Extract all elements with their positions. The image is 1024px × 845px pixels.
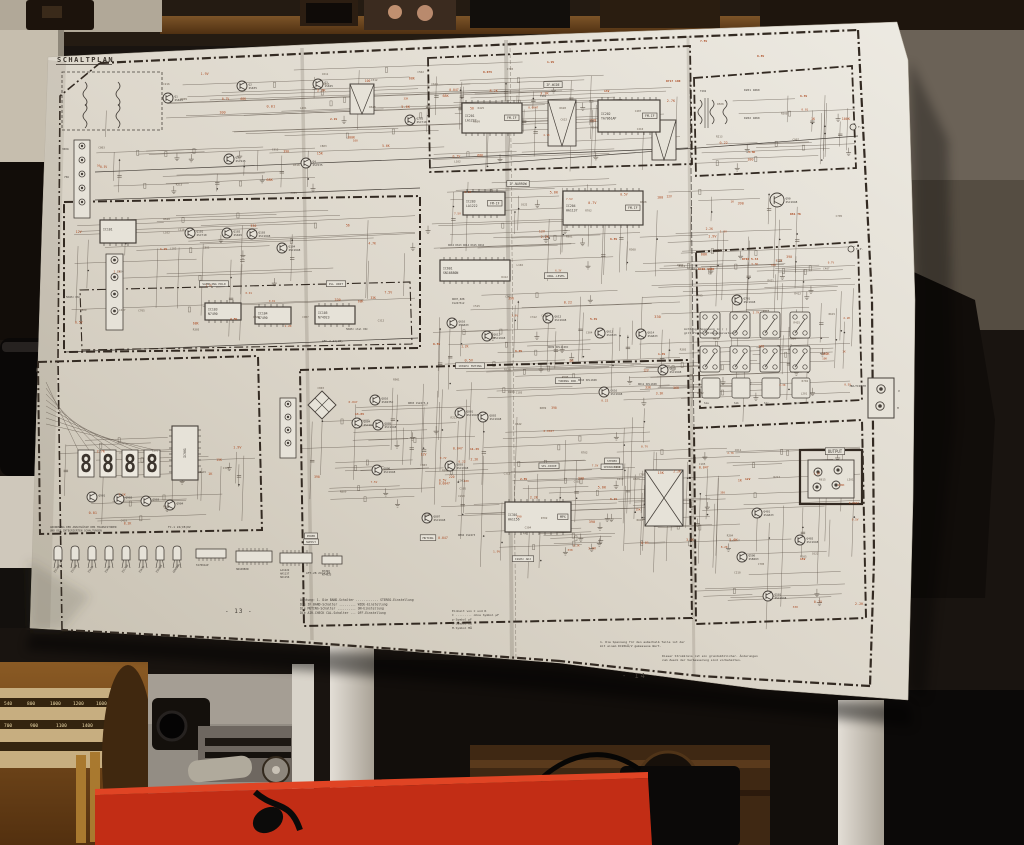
ref-annotation: R615 — [829, 312, 836, 316]
switch-label: S1b — [734, 401, 739, 405]
legend-transistor-outline — [54, 546, 62, 560]
dial-number: 1400 — [82, 723, 93, 729]
jack-strip — [74, 140, 90, 218]
value-annotation: 0.01 — [269, 299, 276, 303]
ref-annotation: R204 — [508, 390, 515, 394]
junction-dot — [768, 194, 770, 196]
schematic-label: 75Ω — [64, 175, 69, 179]
ref-annotation: C803 — [320, 144, 327, 148]
ref-annotation: R809 — [80, 308, 87, 312]
ref-annotation: C502 — [574, 479, 581, 483]
output-jack-pin — [815, 485, 818, 488]
schematic-label: D201 1N60 — [744, 88, 760, 92]
value-annotation: 0.0047 — [528, 105, 538, 109]
voltage-annotation: 12V — [745, 477, 751, 481]
ic-ref: IC103 — [208, 308, 218, 312]
legend-caption: UND DER INTEGRIERTEN SCHALTUNGEN — [50, 529, 102, 533]
voltage-annotation: 13.8V — [355, 412, 364, 416]
ref-annotation: R901 — [566, 235, 573, 239]
transistor-part: 2SC1648 — [289, 248, 301, 252]
ref-annotation: R213 — [763, 309, 770, 313]
legend-ic-label: HA1137 — [280, 571, 290, 575]
transistor-part: 2SC945 — [236, 159, 246, 163]
ic-ref: IC204 — [566, 204, 576, 208]
camera-lens — [158, 712, 186, 740]
chrome-knob-center — [272, 766, 280, 774]
ref-annotation: C705 — [758, 562, 765, 566]
value-annotation: 390 — [516, 515, 522, 519]
ref-annotation: C304 — [714, 248, 721, 252]
ref-annotation: R318 — [293, 163, 300, 167]
legend-transistor-outline — [105, 546, 113, 560]
dial-number: 540 — [4, 701, 12, 707]
value-annotation: 390 — [786, 255, 792, 259]
transistor-part: 2SC1648 — [259, 234, 271, 238]
schematic-label: D610 SEL1048 — [578, 378, 597, 382]
junction-dot — [769, 537, 771, 539]
value-annotation: 2.2K — [471, 458, 479, 462]
switch-label: S1d — [794, 401, 799, 405]
if-can — [350, 84, 374, 114]
ref-annotation: C803 — [290, 191, 297, 195]
ic-ref: IC101 — [103, 228, 113, 232]
junction-dot — [230, 277, 232, 279]
value-annotation: 100 — [747, 157, 753, 161]
value-annotation: 56 — [569, 359, 573, 363]
value-annotation: 0.047 — [438, 536, 448, 540]
ic-tag: FM-IF — [507, 116, 517, 120]
legend-transistor-outline — [139, 546, 147, 560]
ref-annotation: R305 — [680, 347, 687, 351]
value-annotation: 0.22 — [458, 459, 465, 463]
ref-annotation: R204 — [727, 534, 734, 538]
value-annotation: 7.5V — [371, 480, 378, 484]
value-annotation: 2.2K — [118, 492, 125, 496]
ref-annotation: C105 — [460, 487, 467, 491]
ref-annotation: C210 — [458, 494, 465, 498]
transistor-part: 2SC535 — [313, 163, 323, 167]
junction-dot — [88, 270, 90, 272]
ref-annotation: C304 — [525, 525, 532, 529]
ref-annotation: C611 — [322, 72, 329, 76]
switch-label: S1c — [764, 401, 769, 405]
note-line: Die AIR-CHECK CAL-Schalter ... OFF-Einst… — [300, 611, 386, 615]
value-annotation: 3.3K — [540, 91, 549, 95]
dial-number: 1600 — [96, 701, 107, 707]
ref-annotation: C312 — [504, 472, 511, 476]
junction-dot — [322, 420, 324, 422]
schematic-label: T.P. — [858, 125, 865, 129]
value-annotation: 7.5V — [454, 212, 461, 216]
transistor-part: 2SC710 — [197, 233, 207, 237]
ref-annotation: C907 — [302, 315, 309, 319]
value-annotation: 3.3K — [656, 391, 664, 395]
multipath-plate — [868, 378, 894, 418]
ic-tag: FM-IF — [645, 114, 655, 118]
ic-tag: FM-IF — [628, 206, 638, 210]
junction-dot — [619, 335, 621, 337]
voltage-annotation: 1.2V — [160, 247, 167, 251]
legend-ic-label: HA1156 — [280, 575, 290, 579]
switch — [762, 378, 780, 398]
legend-transistor-outline — [156, 546, 164, 560]
junction-dot — [711, 211, 713, 213]
dial-number: 900 — [30, 723, 38, 729]
schematic-label: 50kHz xtal OSC — [346, 327, 368, 331]
junction-dot — [707, 514, 709, 516]
value-annotation: 1K — [842, 350, 846, 354]
family-photo-frame — [364, 0, 456, 30]
jack-pin — [81, 159, 83, 161]
voltage-annotation: 0.8V — [757, 54, 764, 58]
ref-annotation: C705 — [836, 214, 843, 218]
switch — [702, 378, 720, 398]
ref-annotation: R412 — [614, 465, 621, 469]
ref-annotation: C312 — [530, 315, 537, 319]
junction-dot — [788, 389, 790, 391]
voltage-annotation: 2.8V — [520, 477, 527, 481]
note-line: gilt für Verstimmungszustand — [684, 331, 735, 335]
junction-dot — [514, 320, 516, 322]
schematic-label: V — [898, 389, 900, 393]
value-annotation: 33K — [370, 296, 376, 300]
ic-chip — [100, 220, 136, 243]
ref-annotation: R508 — [163, 505, 170, 509]
value-annotation: 7.5V — [592, 463, 599, 467]
value-annotation: 4.7K — [368, 242, 376, 246]
value-annotation: 0.01 — [801, 107, 808, 111]
photo-face — [417, 5, 433, 21]
ref-annotation: R702 — [585, 209, 592, 213]
jack-pin — [287, 429, 289, 431]
value-annotation: 1.9V — [201, 72, 209, 76]
ref-annotation: R213 — [424, 513, 431, 517]
value-annotation: 3.3K — [751, 262, 758, 266]
value-annotation: 330 — [334, 298, 340, 302]
value-annotation: 4.7K — [543, 133, 550, 137]
boxed-label: SUPPLY — [306, 540, 316, 544]
ref-annotation: C705 — [507, 67, 514, 71]
ref-annotation: L201 — [300, 106, 307, 110]
transistor-part: 2SC823 — [607, 333, 617, 337]
value-annotation: 12V — [666, 194, 672, 198]
transistor-part: 2SC1648 — [434, 518, 446, 522]
junction-dot — [291, 239, 293, 241]
boxed-label: TUNING IND. — [558, 379, 578, 383]
value-annotation: 15K — [216, 458, 222, 462]
schematic-label: 50kHz OSC — [66, 295, 80, 299]
ref-annotation: R508 — [442, 469, 449, 473]
ref-annotation: R412 — [501, 275, 508, 279]
boxed-label: SEL.DIODE — [541, 464, 556, 468]
transistor-part: 2SC1648 — [744, 300, 756, 304]
transistor-ref: Q903 — [153, 498, 160, 502]
transistor-part: 2SA823 — [764, 513, 774, 517]
value-annotation: 390 — [589, 520, 595, 524]
boxed-label: PLL UNIT — [329, 282, 344, 286]
value-annotation: 390 — [738, 201, 744, 205]
value-annotation: 0.0047 — [849, 501, 860, 505]
ref-annotation: L201 — [847, 477, 854, 481]
value-annotation: 33K — [645, 386, 651, 390]
ref-annotation: R520 — [504, 367, 511, 371]
voltage-annotation: 13V — [604, 89, 610, 93]
ic-part: TA7061AP — [601, 117, 616, 121]
ref-annotation: R628 — [689, 538, 696, 542]
ref-annotation: C105 — [699, 462, 706, 466]
junction-dot — [501, 542, 503, 544]
transistor-part: 2SC1648 — [786, 200, 798, 204]
jack-pin — [113, 293, 116, 296]
value-annotation: 5.6K — [382, 144, 390, 148]
value-annotation: 390 — [283, 150, 289, 154]
voltage-annotation: 1.4V — [658, 352, 665, 356]
schematic-label: D612 D613 D614 D615 D616 — [448, 243, 485, 247]
value-annotation: 330 — [793, 605, 799, 609]
transistor-part: 2SC1648 — [494, 336, 506, 340]
ic-ref: IC202 — [601, 112, 611, 116]
seven-seg-digit: 8 — [146, 449, 158, 478]
junction-dot — [460, 89, 462, 91]
legend-ic-outline — [196, 549, 226, 558]
legend-ic-label: SN16880N — [236, 567, 249, 571]
value-annotation: 2.2K — [706, 227, 714, 231]
value-annotation: 0.5V — [100, 165, 107, 169]
value-annotation: 68K — [193, 321, 199, 325]
ref-annotation: L102 — [517, 263, 524, 267]
boxed-label: POWER — [307, 534, 316, 538]
switch-label: S1a — [704, 401, 709, 405]
ref-annotation: R305 — [800, 554, 807, 558]
ref-annotation: R628 — [560, 106, 567, 110]
legend-transistor-outline — [173, 546, 181, 560]
top-shelf-object — [600, 0, 720, 28]
ref-annotation: C907 — [793, 138, 800, 142]
value-annotation: 7.5V — [384, 291, 392, 295]
value-annotation: 2.7K — [753, 311, 760, 315]
value-annotation: 12V — [76, 230, 82, 234]
ref-annotation: R213 — [774, 475, 781, 479]
junction-dot — [535, 127, 537, 129]
schematic-label: D804 1S2473 — [458, 533, 476, 537]
ic-part: N7490 — [208, 312, 218, 316]
value-annotation: 0.5V — [75, 321, 83, 325]
ref-annotation: R213 — [176, 182, 183, 186]
value-annotation: 2.2K — [541, 235, 550, 239]
ic-tag: FM-IF — [490, 202, 500, 206]
ref-annotation: C803 — [203, 246, 210, 250]
ref-annotation: R628 — [640, 200, 647, 204]
value-annotation: 68K — [266, 178, 273, 182]
ref-annotation: R809 — [340, 490, 347, 494]
junction-dot — [514, 211, 516, 213]
boxed-label: UNGL.LEVEL — [547, 274, 565, 278]
junction-dot — [397, 420, 399, 422]
ref-annotation: R508 — [629, 248, 636, 252]
ref-annotation: R628 — [369, 105, 376, 109]
schematic-label: D607,608 — [452, 297, 465, 301]
value-annotation: 2.2K — [673, 470, 681, 474]
junction-dot — [533, 98, 535, 100]
value-annotation: 2.7K — [667, 99, 676, 103]
junction-dot — [540, 560, 542, 562]
multipath-jack-pin — [879, 387, 883, 391]
voltage-annotation: 1.9V — [547, 60, 554, 64]
ref-annotation: C304 — [586, 331, 593, 335]
value-annotation: 0.7V — [641, 444, 648, 448]
value-annotation: 2.7K — [97, 450, 106, 454]
ref-annotation: C407 — [691, 267, 698, 271]
voltage-annotation: 7.5V — [700, 39, 707, 43]
junction-dot — [836, 339, 838, 341]
value-annotation: 1K — [731, 199, 735, 203]
ref-annotation: C803 — [420, 463, 427, 467]
ref-annotation: R702 — [581, 450, 588, 454]
value-annotation: 33K — [403, 96, 408, 100]
switch — [732, 378, 750, 398]
value-annotation: 2.7K — [206, 284, 213, 288]
junction-dot — [644, 421, 646, 423]
value-annotation: 3.3K — [779, 383, 786, 387]
ref-annotation: C611 — [735, 448, 742, 452]
value-annotation: 1.9V — [493, 549, 500, 553]
value-annotation: 0.7V — [588, 201, 596, 205]
transistor-part: 2SC1648 — [385, 425, 397, 429]
voltage-annotation: 4.5V — [230, 317, 237, 321]
ref-annotation: C312 — [223, 466, 230, 470]
legend-ic-outline — [280, 553, 312, 563]
value-annotation: 56 — [97, 163, 101, 167]
boxed-label: MUTING — [423, 536, 434, 540]
value-annotation: 2.2K — [317, 89, 326, 93]
voltage-annotation: 2.1V — [330, 117, 337, 121]
ref-annotation: C705 — [138, 309, 145, 313]
ref-annotation: R901 — [393, 378, 400, 382]
voltage-annotation: 11.4V — [470, 447, 479, 451]
value-annotation: 5.6K — [598, 485, 607, 489]
legend-transistor-outline — [71, 546, 79, 560]
value-annotation: 330 — [654, 315, 660, 319]
ref-annotation: C312 — [371, 78, 378, 82]
junction-dot — [687, 477, 689, 479]
value-annotation: 7.5V — [566, 197, 573, 201]
value-annotation: 68K — [477, 154, 483, 158]
value-annotation: 1.2K — [461, 345, 468, 349]
seven-seg-digit: 8 — [80, 449, 92, 478]
value-annotation: 0.0047 — [439, 482, 450, 486]
value-annotation: 100K — [822, 352, 830, 356]
schematic-label: D202 1N60 — [744, 116, 760, 120]
legend-transistor-outline — [122, 546, 130, 560]
value-annotation: 100 — [219, 111, 225, 115]
transistor-part: 2SC1648 — [490, 417, 502, 421]
ref-annotation: R305 — [193, 328, 200, 332]
value-annotation: 1.9V — [720, 230, 727, 234]
value-annotation: 68K — [240, 97, 246, 101]
ref-annotation: R508 — [781, 112, 788, 116]
junction-dot — [518, 208, 520, 210]
junction-dot — [623, 444, 625, 446]
voltage-annotation: 6.8V — [610, 237, 617, 241]
junction-dot — [627, 337, 629, 339]
voltage-annotation: 5.4V — [590, 317, 597, 321]
value-annotation: 0.5V — [464, 359, 473, 363]
value-annotation: 0.01 — [245, 291, 252, 295]
value-annotation: 15K — [317, 152, 324, 156]
value-annotation: 0.22 — [564, 301, 572, 305]
ref-annotation: C407 — [119, 308, 126, 312]
ref-annotation: R809 — [181, 97, 188, 101]
ic-part: SN16880N — [443, 271, 458, 275]
ref-annotation: C304 — [117, 269, 124, 273]
junction-dot — [717, 265, 719, 267]
note-line: mit einem DC20kΩ/V gemessene Wert. — [600, 644, 662, 648]
ref-annotation: R508 — [253, 315, 260, 319]
voltage-annotation: R704 5.34 — [742, 257, 758, 261]
ref-annotation: C407 — [541, 314, 548, 318]
junction-dot — [505, 83, 507, 85]
junction-dot — [307, 178, 309, 180]
junction-dot — [119, 159, 121, 161]
ic-ref: IC203 — [466, 200, 476, 204]
boxed-label: 100kHz MUTING — [458, 364, 482, 368]
value-annotation: 0.5V — [844, 382, 851, 386]
ref-annotation: R809 — [540, 406, 547, 410]
jack-pin — [287, 442, 289, 444]
value-annotation: 1K — [738, 479, 742, 483]
jack-pin — [113, 276, 116, 279]
picture-frame-photo — [306, 3, 352, 23]
ref-annotation: C312 — [272, 147, 279, 151]
junction-dot — [216, 188, 218, 190]
schematic-label: T202 — [700, 89, 707, 93]
legend-ic-label: N74923 — [322, 572, 332, 576]
ic-tag: MPX — [560, 515, 566, 519]
value-annotation: 0.01 — [641, 541, 649, 545]
ref-annotation: C907 — [505, 295, 512, 299]
ref-annotation: L201 — [801, 391, 808, 395]
voltage-annotation: 6.3V — [800, 94, 807, 98]
value-annotation: 68K — [442, 94, 449, 98]
value-annotation: 100 — [657, 196, 663, 200]
ref-annotation: C105 — [516, 390, 523, 394]
boxed-label: IF-WIDE — [546, 83, 560, 87]
ref-annotation: C419 — [121, 518, 128, 522]
top-shelf-object — [470, 0, 570, 28]
junction-dot — [700, 493, 702, 495]
ref-annotation: C622 — [561, 118, 568, 122]
ic-ref: IC105 — [318, 311, 328, 315]
value-annotation: 5.6K — [729, 538, 738, 542]
value-annotation: 0.01 — [267, 105, 276, 109]
transistor-part: 2SA823 — [459, 323, 469, 327]
ic-part: N74923 — [318, 316, 330, 320]
transistor-part: 2SC1648 — [611, 392, 623, 396]
value-annotation: 2.2K — [843, 316, 850, 320]
dial-number: 1000 — [50, 701, 61, 707]
ref-annotation: C210 — [734, 570, 741, 574]
ref-annotation: R809 — [473, 119, 480, 123]
schematic-label: AFC-2 24(CB) — [322, 339, 343, 343]
junction-dot — [627, 262, 629, 264]
voltage-annotation: 3.3K — [748, 150, 755, 154]
junction-dot — [462, 514, 464, 516]
junction-dot — [576, 497, 578, 499]
transistor-part: 2SB463 — [749, 557, 759, 561]
value-annotation: 390 — [720, 491, 725, 495]
ref-annotation: C803 — [318, 386, 325, 390]
legend-transistor-outline — [88, 546, 96, 560]
